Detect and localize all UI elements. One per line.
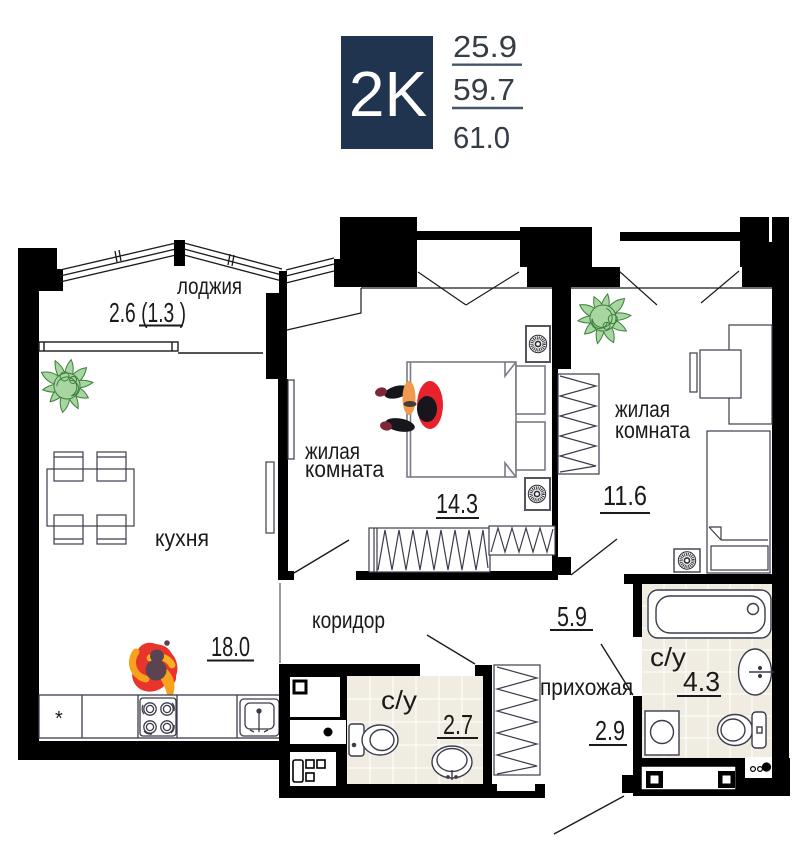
svg-text:5.9: 5.9 — [557, 601, 587, 632]
svg-text:18.0: 18.0 — [211, 631, 250, 662]
svg-text:коридор: коридор — [312, 607, 385, 633]
svg-text:25.9: 25.9 — [453, 29, 517, 64]
svg-text:лоджия: лоджия — [177, 273, 242, 299]
svg-text:с/у: с/у — [381, 685, 417, 715]
svg-text:2K: 2K — [349, 58, 427, 130]
svg-text:2.7: 2.7 — [443, 709, 473, 740]
svg-text:59.7: 59.7 — [453, 72, 515, 107]
svg-text:2.6 (1.3 ): 2.6 (1.3 ) — [109, 297, 186, 328]
svg-text:с/у: с/у — [650, 642, 686, 672]
svg-text:61.0: 61.0 — [453, 120, 510, 155]
svg-text:комната: комната — [615, 417, 690, 443]
svg-text:14.3: 14.3 — [436, 488, 478, 519]
svg-text:11.6: 11.6 — [603, 480, 647, 511]
svg-text:4.3: 4.3 — [683, 666, 720, 697]
svg-text:кухня: кухня — [155, 525, 209, 551]
svg-text:прихожая: прихожая — [540, 674, 633, 700]
svg-text:2.9: 2.9 — [595, 715, 625, 746]
svg-text:комната: комната — [305, 456, 384, 482]
svg-text:*: * — [55, 708, 63, 730]
